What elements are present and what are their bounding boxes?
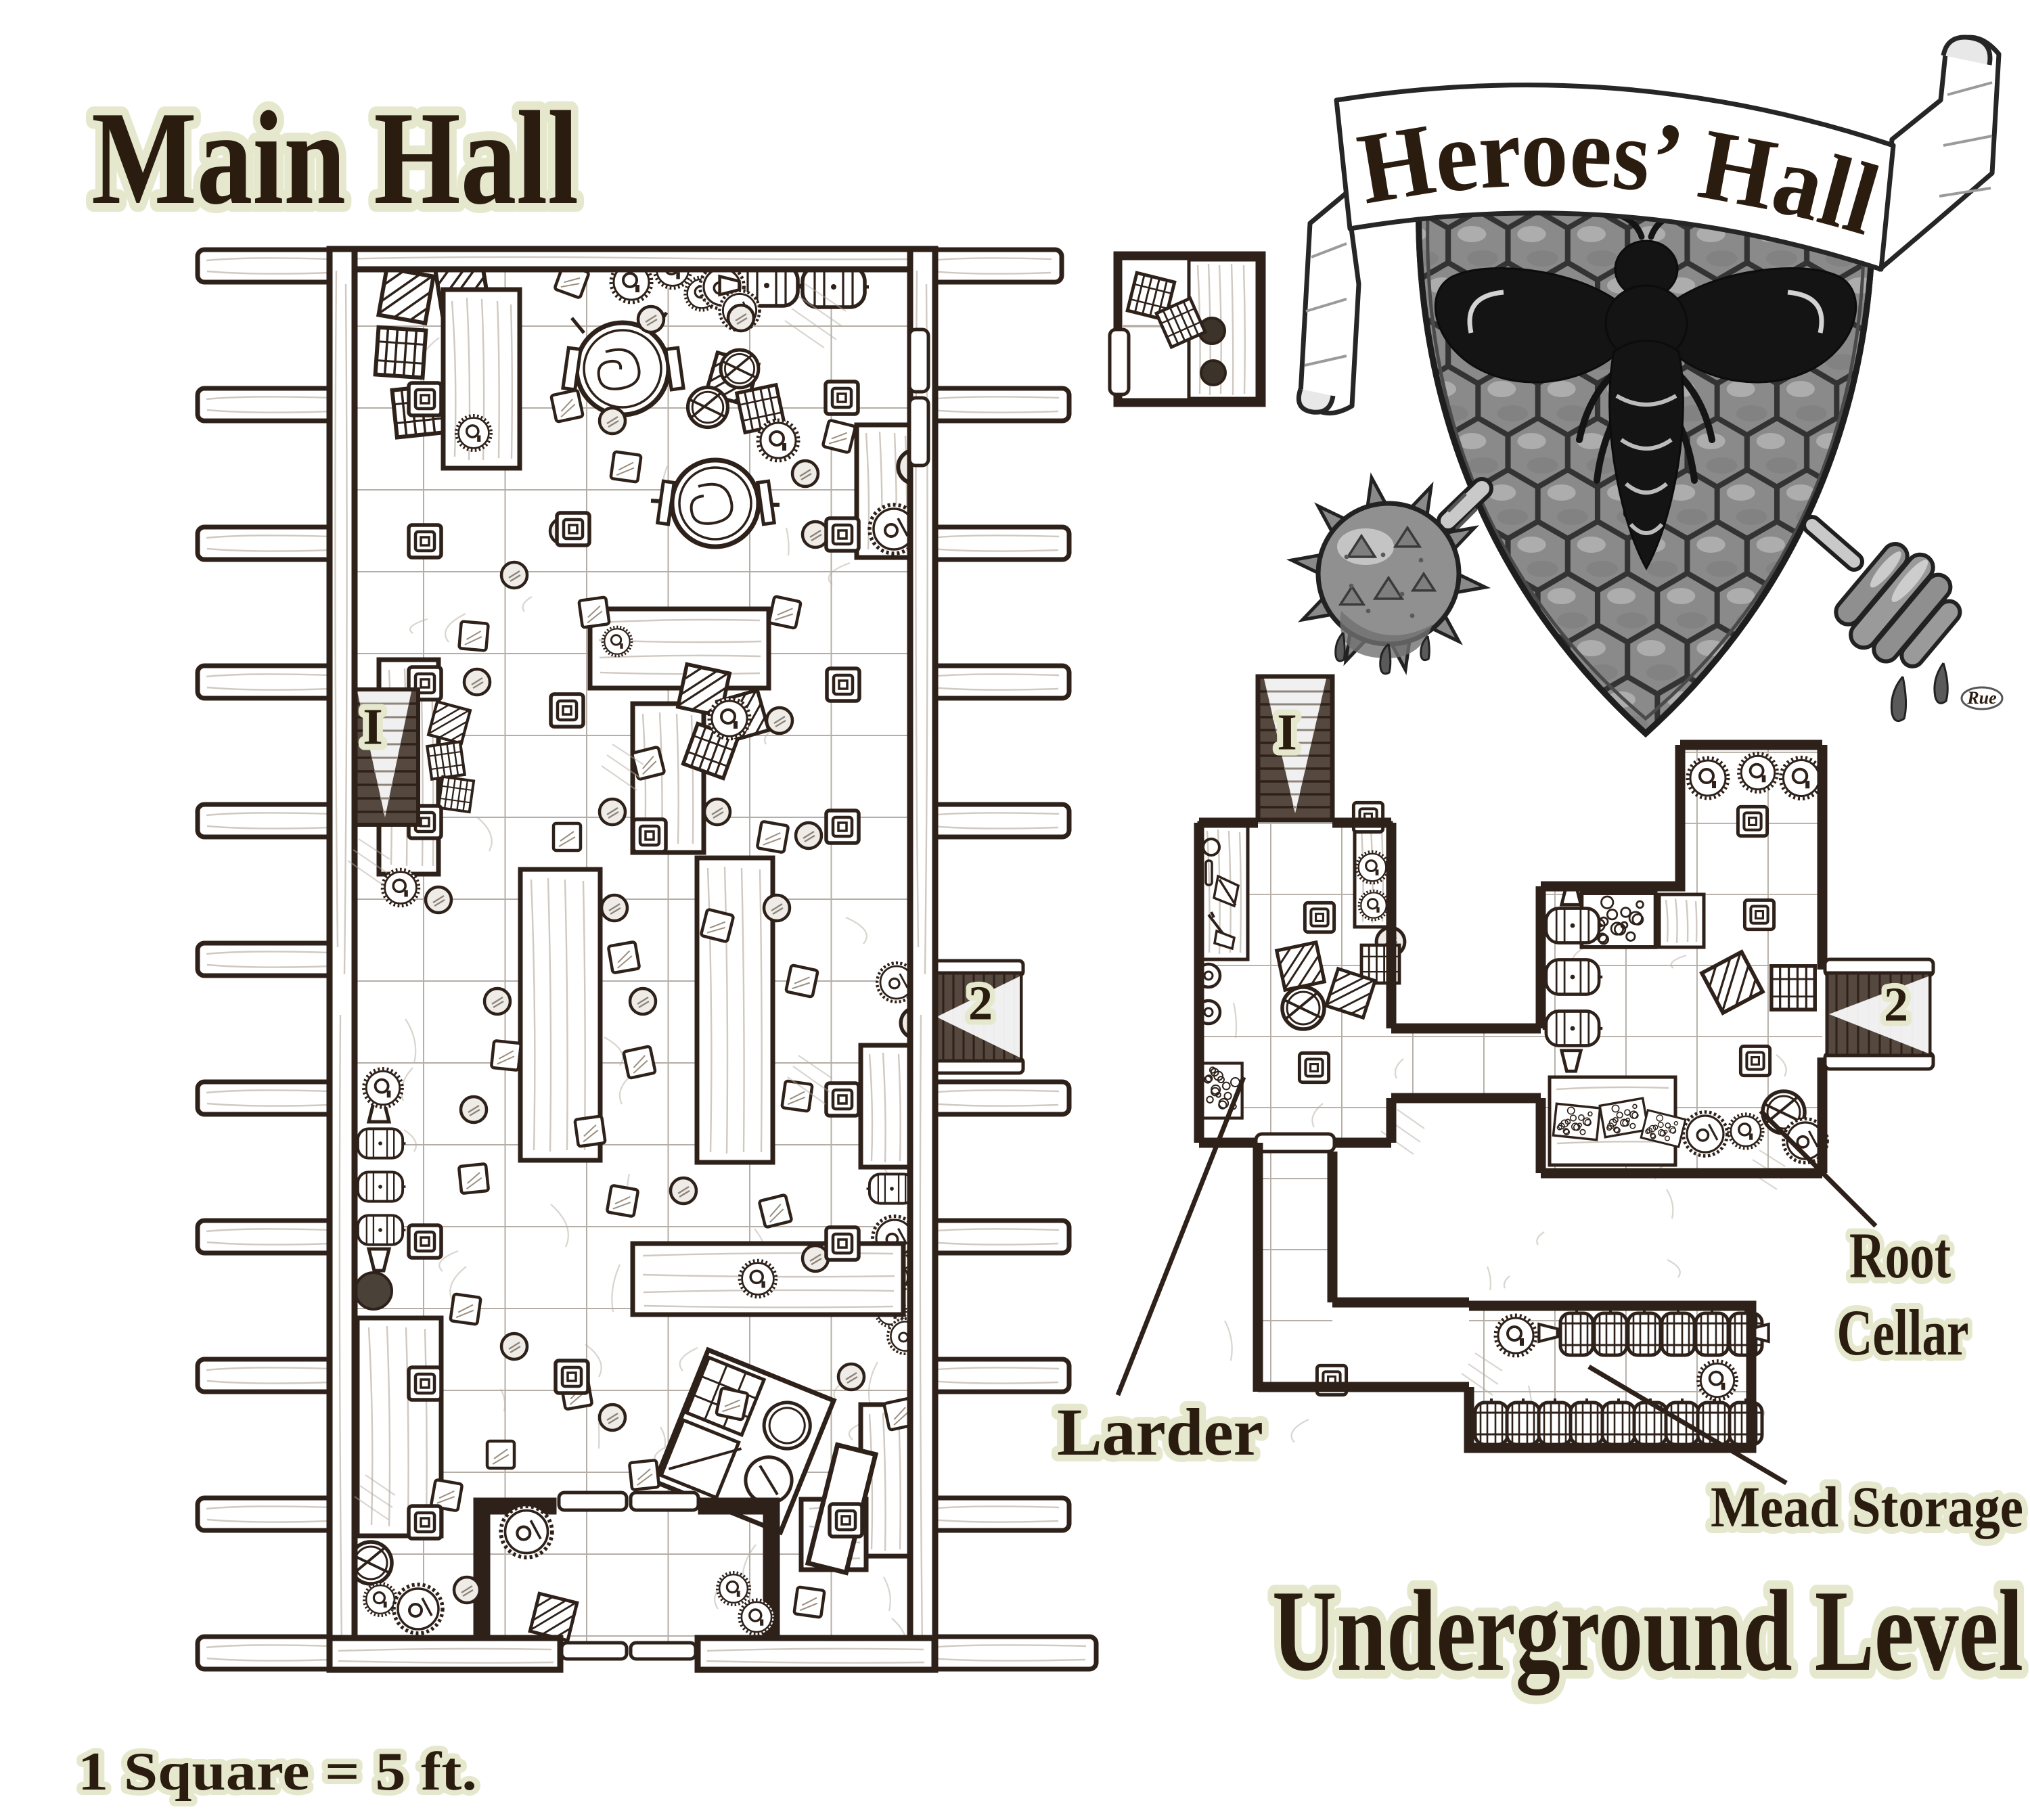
svg-text:Mead Storage: Mead Storage [1711,1474,2023,1539]
svg-text:Rue: Rue [1966,688,1996,708]
svg-text:2: 2 [968,976,993,1030]
svg-text:Root: Root [1849,1219,1951,1292]
svg-text:1 Square = 5 ft.: 1 Square = 5 ft. [78,1742,477,1802]
svg-text:2: 2 [1884,978,1908,1032]
svg-text:I: I [363,698,383,755]
svg-text:Underground Level: Underground Level [1272,1567,2023,1696]
svg-text:Cellar: Cellar [1837,1296,1969,1369]
svg-text:Larder: Larder [1057,1394,1263,1470]
svg-text:I: I [1277,704,1297,760]
svg-text:Main Hall: Main Hall [91,84,579,232]
